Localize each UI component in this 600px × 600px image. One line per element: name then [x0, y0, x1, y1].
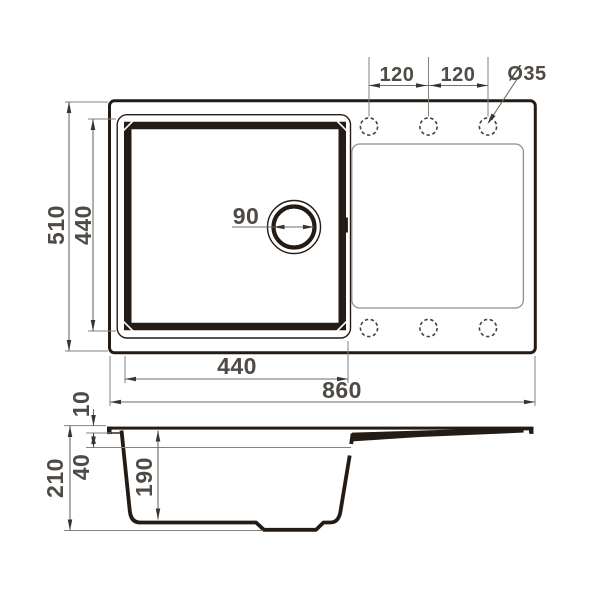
- arrowhead: [68, 426, 73, 437]
- dim-label-bowl-length: 440: [217, 353, 257, 379]
- dim-label-hole-diameter: Ø35: [507, 63, 546, 85]
- tap-hole: [420, 118, 437, 135]
- arrowhead: [524, 400, 535, 405]
- dim-label-hole-pitch-2: 120: [441, 64, 476, 86]
- dim-label-bowl-depth: 440: [70, 205, 96, 245]
- dim-overall-length: 860: [110, 356, 535, 406]
- sink-outline: [110, 101, 536, 353]
- tap-hole: [479, 319, 496, 336]
- tap-hole: [420, 319, 437, 336]
- tap-holes: [360, 118, 496, 337]
- arrowhead: [110, 400, 121, 405]
- dim-label-hole-pitch-1: 120: [380, 64, 415, 86]
- dim-label-overall-length: 860: [322, 377, 362, 403]
- tap-hole: [360, 118, 377, 135]
- arrowhead: [488, 114, 496, 125]
- arrowhead: [416, 83, 427, 88]
- dim-label-drain-diameter: 90: [233, 203, 260, 229]
- arrowhead: [477, 83, 488, 88]
- dim-label-bowl-inner-depth: 190: [131, 457, 157, 497]
- dim-label-overall-depth: 510: [43, 205, 69, 245]
- overflow-slot: [345, 218, 348, 233]
- drainboard-panel: [352, 144, 524, 308]
- arrowhead: [125, 377, 136, 382]
- drawing-page: 120 120 Ø35 90 510: [0, 0, 600, 600]
- dim-hole-pitch: 120 120 Ø35: [369, 63, 547, 124]
- rim-right-edge: [529, 427, 533, 434]
- sink-dimension-drawing: 120 120 Ø35 90 510: [0, 0, 600, 600]
- tap-hole: [479, 118, 496, 135]
- drainboard-end-notch: [524, 430, 529, 433]
- dim-label-overall-height: 210: [42, 458, 68, 498]
- arrowhead: [156, 509, 161, 520]
- dim-bowl-inner-depth: 190: [131, 431, 160, 520]
- arrowhead: [156, 431, 161, 442]
- side-view: 210 10 40 190: [42, 391, 533, 531]
- tap-hole: [360, 319, 377, 336]
- arrowhead: [91, 320, 96, 331]
- arrowhead: [68, 520, 73, 531]
- top-view: 120 120 Ø35 90 510: [43, 57, 547, 406]
- arrowhead: [67, 102, 72, 113]
- arrowhead: [369, 83, 380, 88]
- dim-label-rim-height: 10: [68, 391, 94, 418]
- dim-overflow-level: 40: [68, 433, 96, 480]
- arrowhead: [67, 340, 72, 351]
- arrowhead: [430, 83, 441, 88]
- dim-label-overflow-level: 40: [68, 454, 94, 481]
- arrowhead: [91, 119, 96, 130]
- dim-bowl-length: 440: [125, 341, 348, 383]
- dim-rim-height: 10: [68, 391, 111, 433]
